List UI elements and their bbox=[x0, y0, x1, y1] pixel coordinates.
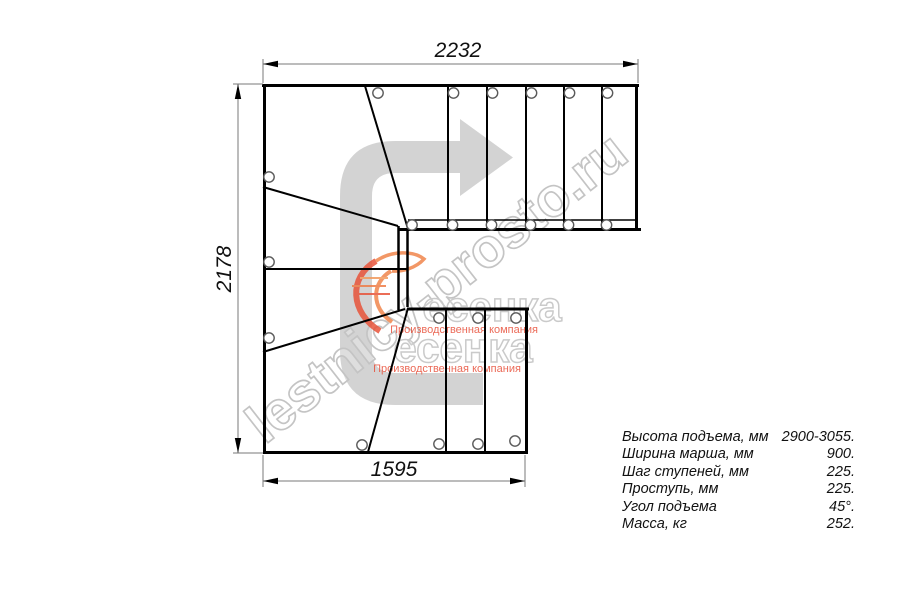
spec-label: Высота подъема, мм bbox=[622, 429, 769, 446]
spec-value: 225. bbox=[827, 464, 855, 481]
spec-value: 252. bbox=[827, 516, 855, 533]
top-dimension-value: 2232 bbox=[434, 39, 482, 62]
bottom-dimension-value: 1595 bbox=[371, 458, 418, 481]
spec-row-mass: Масса, кг 252. bbox=[622, 516, 855, 533]
left-dimension-value: 2178 bbox=[213, 245, 236, 293]
spec-label: Угол подъема bbox=[622, 499, 717, 516]
spec-row-tread-depth: Проступь, мм 225. bbox=[622, 481, 855, 498]
spec-row-step-pitch: Шаг ступеней, мм 225. bbox=[622, 464, 855, 481]
staircase-drawing-page: lestnicy-prosto.ru есенка Производственн… bbox=[0, 0, 900, 600]
logo-tagline-text-2: Производственная компания bbox=[373, 363, 521, 375]
spec-value: 225. bbox=[827, 481, 855, 498]
logo-name-text-1: есенка bbox=[422, 283, 562, 330]
spec-table: Высота подъема, мм 2900-3055. Ширина мар… bbox=[622, 429, 855, 533]
spec-label: Масса, кг bbox=[622, 516, 687, 533]
spec-value: 45°. bbox=[829, 499, 855, 516]
spec-value: 2900-3055. bbox=[782, 429, 855, 446]
spec-row-climb-angle: Угол подъема 45°. bbox=[622, 499, 855, 516]
spec-label: Шаг ступеней, мм bbox=[622, 464, 749, 481]
top-dim-extensions bbox=[263, 59, 638, 83]
spec-label: Ширина марша, мм bbox=[622, 446, 754, 463]
spec-row-rise-height: Высота подъема, мм 2900-3055. bbox=[622, 429, 855, 446]
spec-value: 900. bbox=[827, 446, 855, 463]
spec-row-flight-width: Ширина марша, мм 900. bbox=[622, 446, 855, 463]
winder-line-upper bbox=[263, 187, 398, 226]
spec-label: Проступь, мм bbox=[622, 481, 718, 498]
